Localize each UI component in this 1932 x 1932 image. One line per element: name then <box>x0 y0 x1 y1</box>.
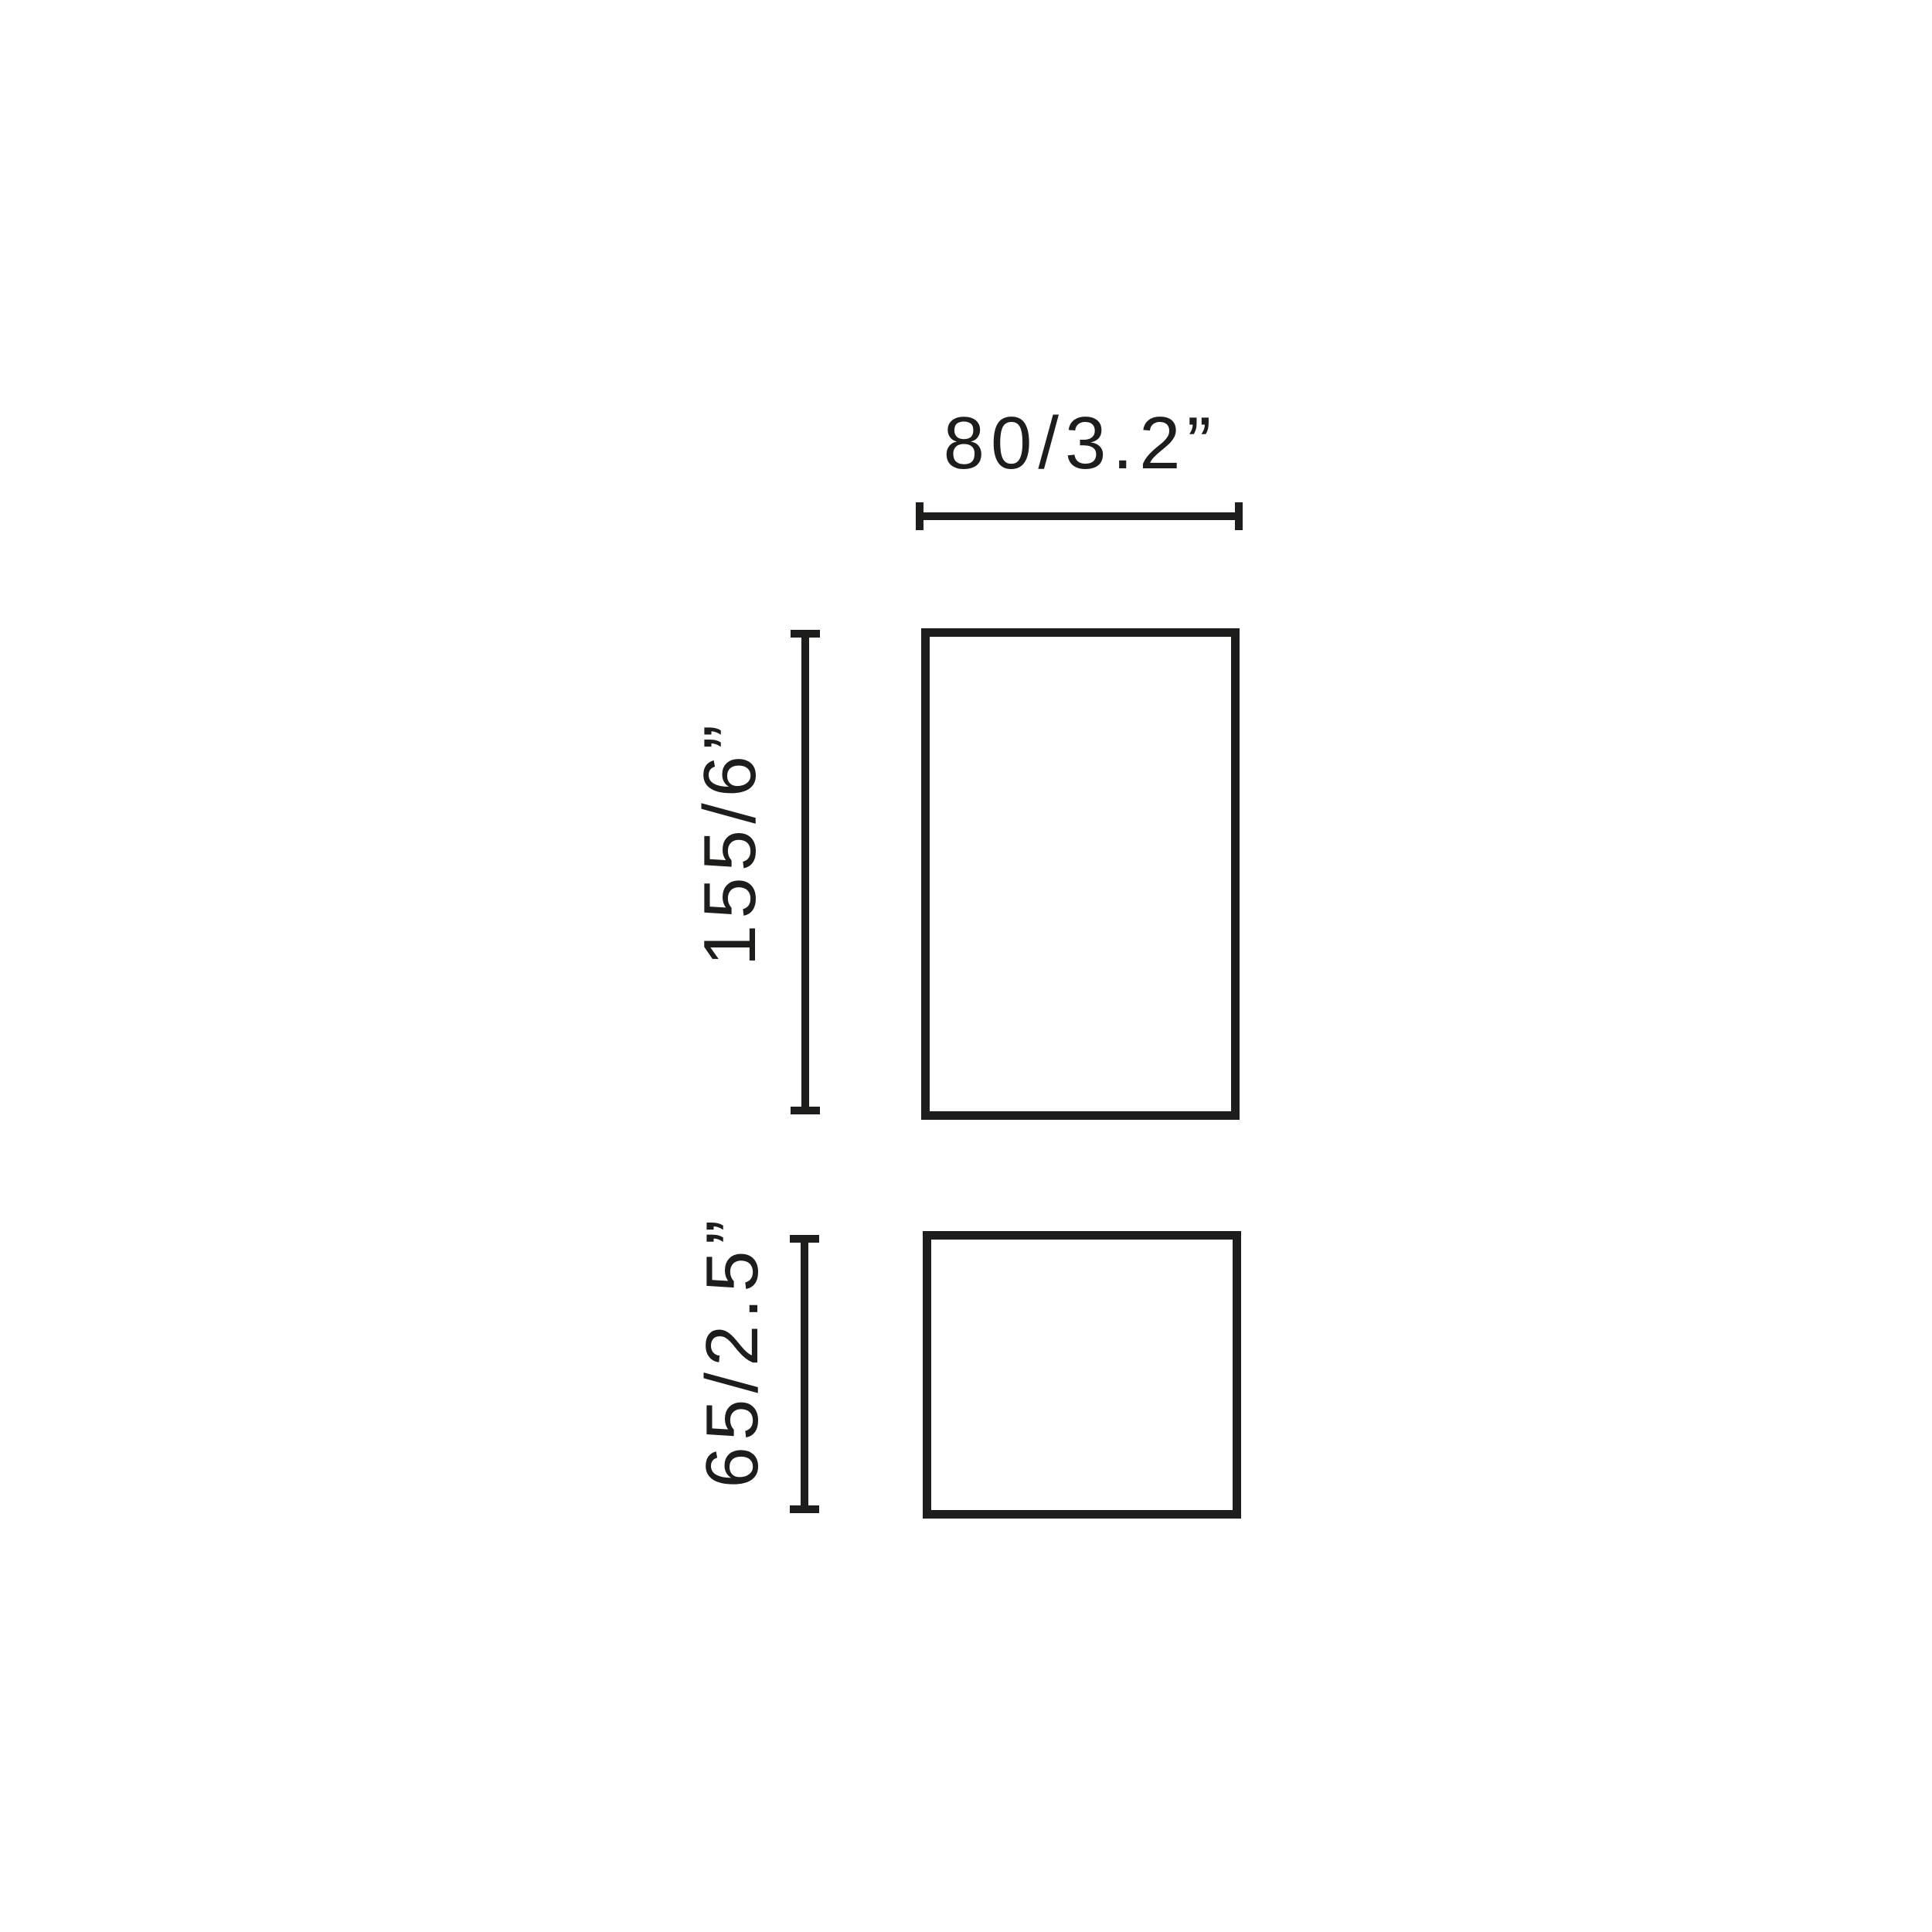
lower-height-dimension-line <box>790 1235 819 1513</box>
dimension-tick-bottom <box>791 1107 820 1114</box>
front-view-outline <box>921 628 1240 1120</box>
upper-height-dimension-label: 155/6” <box>693 719 767 966</box>
upper-height-dimension-line <box>791 630 820 1114</box>
dimension-diagram: 80/3.2” 155/6” 65/2.5” <box>0 0 1932 1932</box>
dimension-tick-bottom <box>790 1505 819 1513</box>
dimension-line <box>916 512 1243 520</box>
lower-height-dimension-label: 65/2.5” <box>696 1214 770 1488</box>
width-dimension-label: 80/3.2” <box>944 406 1218 481</box>
dimension-line <box>801 630 809 1114</box>
side-view-outline <box>923 1231 1241 1519</box>
dimension-tick-right <box>1235 502 1243 530</box>
width-dimension-line <box>916 502 1243 530</box>
dimension-line <box>801 1235 808 1513</box>
